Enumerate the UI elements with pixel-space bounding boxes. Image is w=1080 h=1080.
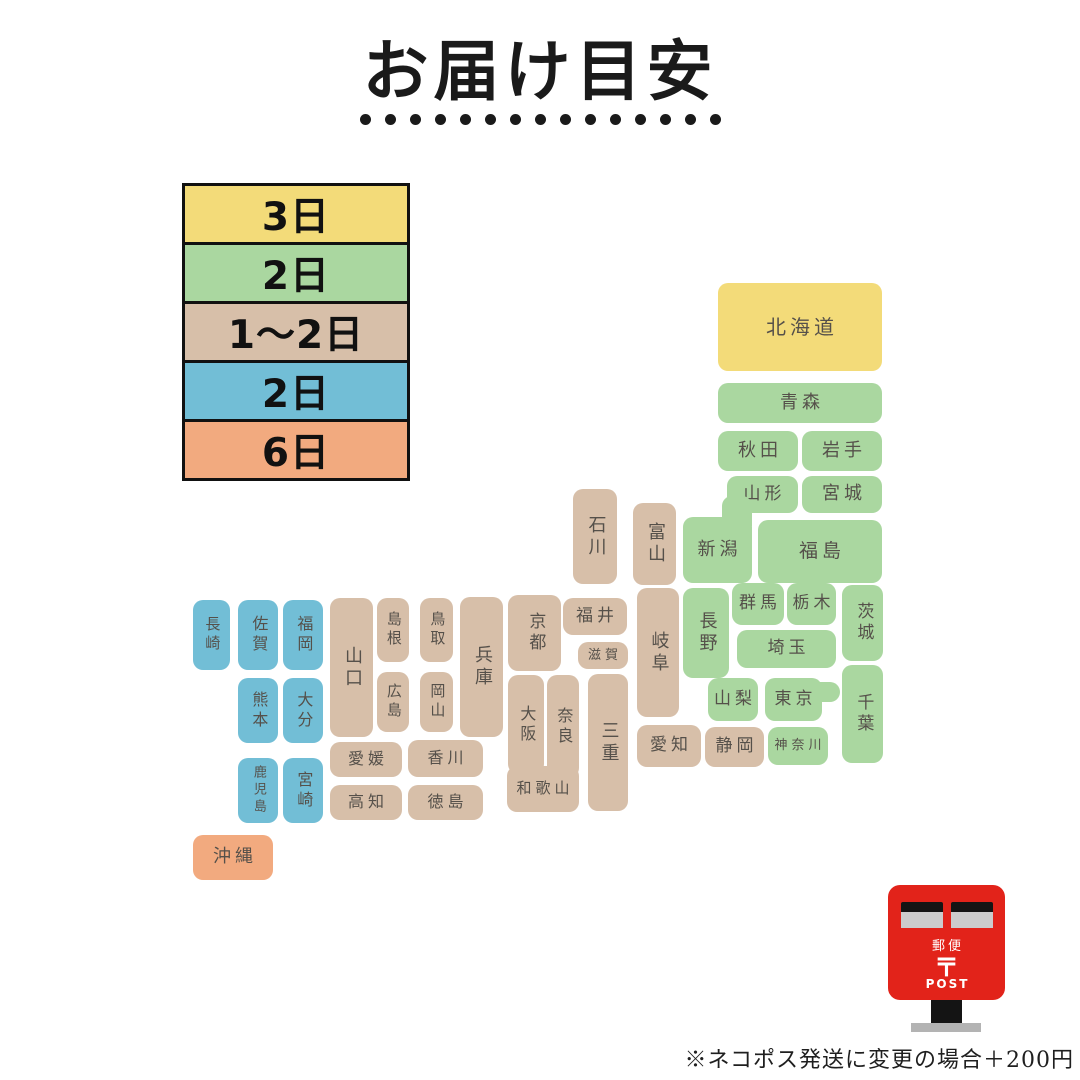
map-block-aichi: 愛知: [637, 725, 701, 767]
map-block-hokkaido: 北海道: [718, 283, 882, 371]
map-block-hiroshima: 広島: [377, 672, 409, 732]
map-block-iwate: 岩手: [802, 431, 882, 471]
map-block-toyama: 富山: [633, 503, 676, 585]
map-block-kanagawa: 神奈川: [768, 727, 828, 765]
postbox-icon: 郵便 〒 POST: [888, 885, 1005, 1032]
map-block-niigata: 新潟: [683, 517, 752, 583]
postbox-base: [911, 1023, 981, 1032]
map-block-fukushima: 福島: [758, 520, 882, 583]
postbox-slot-left: [901, 902, 943, 928]
map-block-fukuoka: 福岡: [283, 600, 323, 670]
map-block-oita: 大分: [283, 678, 323, 743]
map-block-wakayama: 和歌山: [507, 766, 579, 812]
postbox-stand: [931, 1000, 962, 1023]
map-block-hyogo: 兵庫: [460, 597, 503, 737]
map-block-akita: 秋田: [718, 431, 798, 471]
map-block-ibaraki: 茨城: [842, 585, 883, 661]
map-block-yamaguchi: 山口: [330, 598, 373, 737]
map-block-shizuoka: 静岡: [705, 727, 764, 767]
map-block-tokushima: 徳島: [408, 785, 483, 820]
postbox-post-label: POST: [888, 977, 1005, 991]
map-block-nagasaki: 長崎: [193, 600, 230, 670]
map-block-kagawa: 香川: [408, 740, 483, 777]
map-block-aomori: 青森: [718, 383, 882, 423]
map-block-gifu: 岐阜: [637, 588, 679, 717]
postbox-slot-right-bottom: [951, 912, 993, 928]
map-block-okinawa: 沖縄: [193, 835, 273, 880]
map-block-kochi: 高知: [330, 785, 402, 820]
postbox-body: 郵便 〒 POST: [888, 885, 1005, 1000]
map-block-shimane: 島根: [377, 598, 409, 662]
map-block-nagano: 長野: [683, 588, 729, 678]
map-block-miyazaki: 宮崎: [283, 758, 323, 823]
map-block-tottori: 鳥取: [420, 598, 453, 662]
postbox-slot-left-top: [901, 902, 943, 912]
map-block-ishikawa: 石川: [573, 489, 617, 584]
map-block-nara: 奈良: [547, 675, 579, 778]
delivery-estimate-infographic: お届け目安 3日2日1〜2日2日6日 北海道青森秋田岩手山形宮城新潟福島石川富山…: [0, 0, 1080, 1080]
map-block-yamanashi: 山梨: [708, 678, 758, 721]
map-block-chiba: 千葉: [842, 665, 883, 763]
map-block-miyagi: 宮城: [802, 476, 882, 513]
map-block-saga: 佐賀: [238, 600, 278, 670]
map-block-saitama: 埼玉: [737, 630, 836, 668]
postbox-slot-right: [951, 902, 993, 928]
map-block-kumamoto: 熊本: [238, 678, 278, 743]
map-block-ehime: 愛媛: [330, 742, 402, 777]
postbox-slot-left-bottom: [901, 912, 943, 928]
map-block-mie: 三重: [588, 674, 628, 811]
footnote: ※ネコポス発送に変更の場合＋200円: [0, 1042, 1074, 1074]
map-block-tochigi: 栃木: [787, 583, 836, 625]
map-block-fukui: 福井: [563, 598, 627, 635]
map-block-kyoto: 京都: [508, 595, 561, 671]
map-block-osaka: 大阪: [508, 675, 544, 774]
map-block-kagoshima: 鹿児島: [238, 758, 278, 823]
map-block-gunma: 群馬: [732, 583, 784, 625]
map-block-okayama: 岡山: [420, 672, 453, 732]
map-block-tokyo: 東京: [765, 678, 822, 721]
postbox-slot-right-top: [951, 902, 993, 912]
map-block-shiga: 滋賀: [578, 642, 628, 669]
